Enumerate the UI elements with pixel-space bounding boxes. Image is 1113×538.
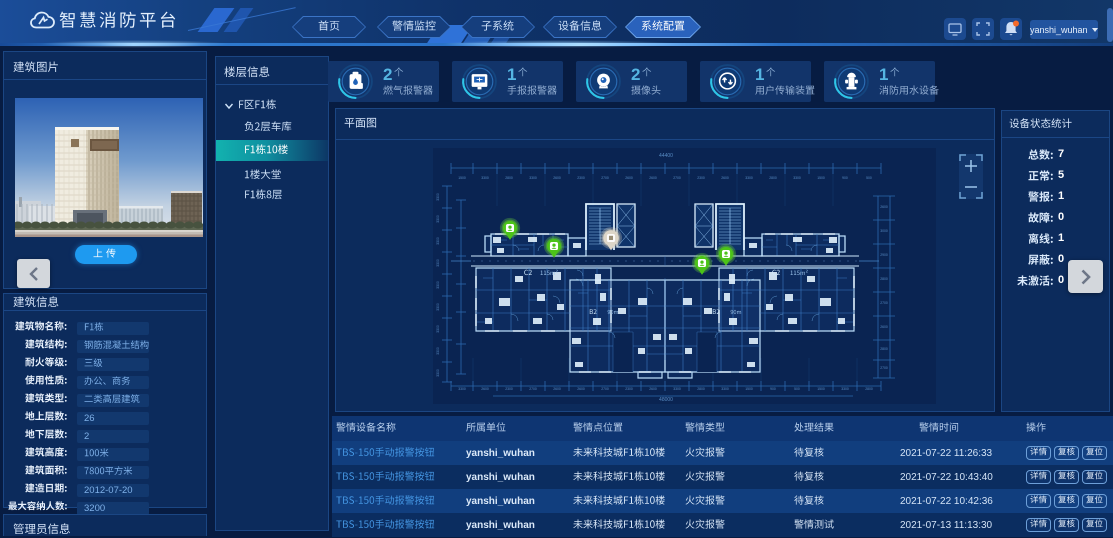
svg-text:3300: 3300 (436, 369, 440, 377)
svg-text:48000: 48000 (659, 397, 673, 403)
svg-text:2300: 2300 (697, 176, 705, 180)
svg-text:3000: 3000 (880, 229, 888, 233)
svg-text:2600: 2600 (880, 325, 888, 329)
svg-text:2600: 2600 (481, 387, 489, 391)
svg-text:1500: 1500 (817, 387, 825, 391)
svg-text:2800: 2800 (880, 347, 888, 351)
svg-text:2900: 2900 (880, 253, 888, 257)
svg-text:1500: 1500 (817, 176, 825, 180)
svg-text:3300: 3300 (529, 176, 537, 180)
svg-text:2700: 2700 (529, 387, 537, 391)
svg-text:1500: 1500 (745, 387, 753, 391)
svg-text:3300: 3300 (793, 176, 801, 180)
svg-text:3300: 3300 (673, 387, 681, 391)
svg-text:2800: 2800 (505, 176, 513, 180)
svg-text:44400: 44400 (659, 153, 673, 159)
svg-text:500: 500 (866, 176, 872, 180)
svg-text:2700: 2700 (601, 176, 609, 180)
svg-text:3300: 3300 (481, 176, 489, 180)
svg-text:2600: 2600 (625, 176, 633, 180)
svg-text:2800: 2800 (880, 277, 888, 281)
svg-text:1500: 1500 (458, 176, 466, 180)
svg-text:3300: 3300 (436, 325, 440, 333)
svg-text:2600: 2600 (649, 176, 657, 180)
svg-text:3300: 3300 (458, 387, 466, 391)
svg-text:3300: 3300 (841, 387, 849, 391)
svg-text:2700: 2700 (673, 176, 681, 180)
svg-text:3300: 3300 (745, 176, 753, 180)
svg-text:2600: 2600 (880, 205, 888, 209)
svg-text:3300: 3300 (721, 387, 729, 391)
svg-text:3300: 3300 (436, 303, 440, 311)
svg-text:2600: 2600 (553, 176, 561, 180)
svg-text:2700: 2700 (880, 301, 888, 305)
svg-text:2300: 2300 (577, 176, 585, 180)
svg-text:900: 900 (770, 387, 776, 391)
svg-text:2600: 2600 (721, 176, 729, 180)
svg-text:2600: 2600 (553, 387, 561, 391)
svg-text:3300: 3300 (436, 281, 440, 289)
svg-text:3300: 3300 (436, 347, 440, 355)
svg-text:500: 500 (794, 387, 800, 391)
svg-text:3300: 3300 (436, 259, 440, 267)
svg-text:3300: 3300 (436, 237, 440, 245)
svg-text:3300: 3300 (436, 193, 440, 201)
svg-text:2600: 2600 (649, 387, 657, 391)
svg-text:2700: 2700 (880, 366, 888, 370)
svg-text:2300: 2300 (505, 387, 513, 391)
svg-text:2800: 2800 (865, 387, 873, 391)
svg-text:2700: 2700 (601, 387, 609, 391)
svg-text:2600: 2600 (577, 387, 585, 391)
svg-text:2800: 2800 (697, 387, 705, 391)
svg-text:2300: 2300 (625, 387, 633, 391)
svg-text:2800: 2800 (769, 176, 777, 180)
svg-text:900: 900 (842, 176, 848, 180)
svg-text:3300: 3300 (436, 215, 440, 223)
